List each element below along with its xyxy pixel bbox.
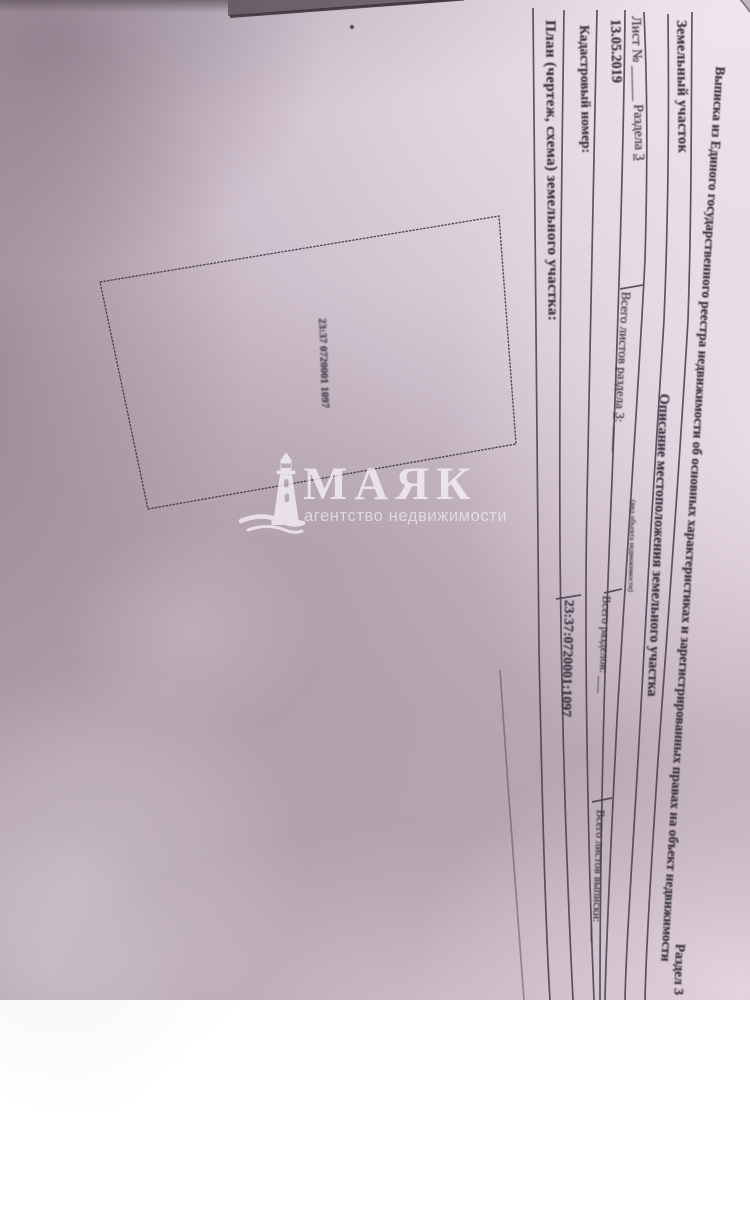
- svg-text:агентство недвижимости: агентство недвижимости: [304, 507, 507, 525]
- svg-text:МАЯК: МАЯК: [303, 458, 477, 510]
